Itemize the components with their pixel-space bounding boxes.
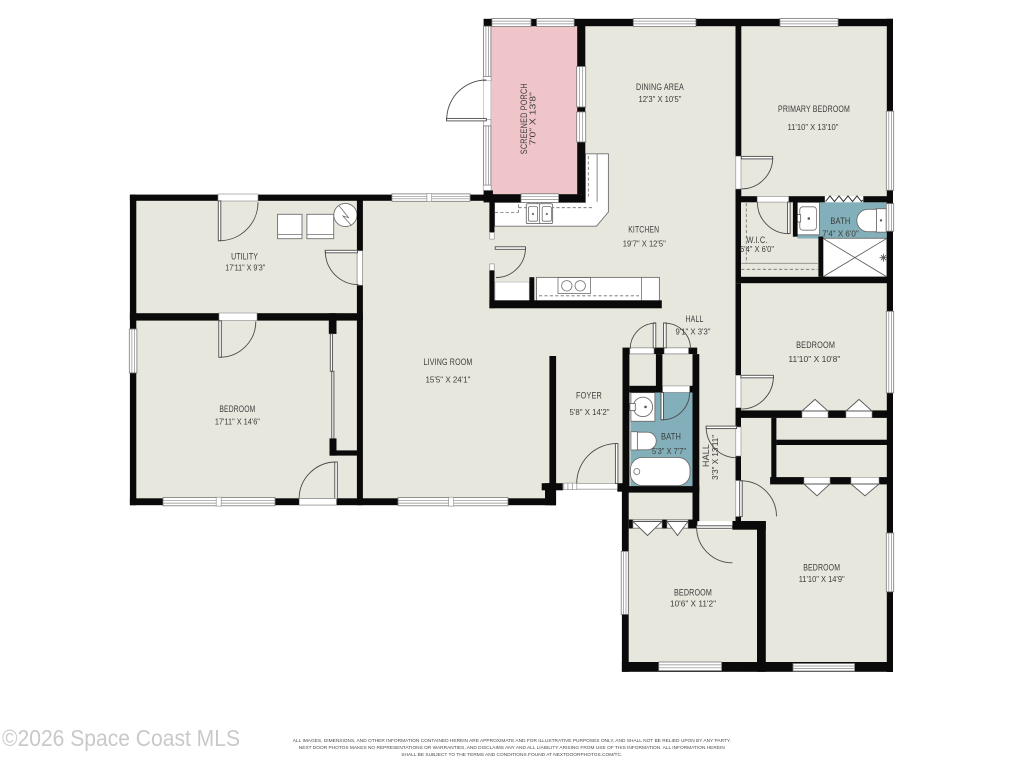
svg-text:BEDROOM: BEDROOM [674, 588, 712, 598]
svg-text:BEDROOM: BEDROOM [803, 563, 840, 573]
svg-text:11'10" X 10'8": 11'10" X 10'8" [788, 354, 840, 364]
svg-text:FOYER: FOYER [576, 391, 602, 401]
svg-text:BEDROOM: BEDROOM [796, 340, 835, 350]
svg-text:7'4" X 6'0": 7'4" X 6'0" [822, 228, 859, 238]
svg-text:HALL: HALL [686, 314, 704, 324]
svg-text:BATH: BATH [661, 432, 681, 442]
svg-text:©2026 Space Coast MLS: ©2026 Space Coast MLS [2, 725, 240, 751]
svg-text:DINING AREA: DINING AREA [636, 82, 684, 92]
svg-text:7'0" X 13'8": 7'0" X 13'8" [528, 92, 538, 145]
svg-text:ALL IMAGES, DIMENSIONS, AND OT: ALL IMAGES, DIMENSIONS, AND OTHER INFORM… [293, 738, 731, 744]
svg-text:PRIMARY BEDROOM: PRIMARY BEDROOM [778, 104, 850, 114]
svg-text:9'1" X 3'3": 9'1" X 3'3" [676, 327, 711, 337]
svg-text:BATH: BATH [830, 216, 850, 226]
svg-text:17'11" X 14'6": 17'11" X 14'6" [215, 416, 260, 426]
svg-text:6'4" X 6'0": 6'4" X 6'0" [740, 244, 774, 254]
svg-text:3'3" X 13'11": 3'3" X 13'11" [710, 435, 720, 480]
svg-text:BEDROOM: BEDROOM [219, 404, 255, 414]
svg-text:17'11" X 9'3": 17'11" X 9'3" [225, 262, 265, 272]
svg-text:11'10" X 13'10": 11'10" X 13'10" [788, 122, 839, 132]
svg-text:11'10" X 14'9": 11'10" X 14'9" [799, 574, 845, 584]
svg-text:19'7" X 12'5": 19'7" X 12'5" [623, 239, 666, 249]
svg-text:5'3" X 7'7": 5'3" X 7'7" [652, 446, 686, 456]
svg-text:UTILITY: UTILITY [231, 252, 258, 262]
svg-text:15'5" X 24'1": 15'5" X 24'1" [426, 375, 471, 385]
svg-text:SHALL BE SUBJECT TO THE TERMS: SHALL BE SUBJECT TO THE TERMS AND CONDIT… [401, 752, 622, 758]
svg-text:12'3" X 10'5": 12'3" X 10'5" [639, 94, 682, 104]
svg-text:NEXT DOOR PHOTOS MAKES NO REPR: NEXT DOOR PHOTOS MAKES NO REPRESENTATION… [299, 745, 726, 751]
svg-text:5'8" X 14'2": 5'8" X 14'2" [570, 407, 610, 417]
svg-text:10'6" X 11'2": 10'6" X 11'2" [670, 598, 716, 608]
svg-text:KITCHEN: KITCHEN [628, 224, 659, 234]
svg-text:LIVING ROOM: LIVING ROOM [424, 357, 473, 367]
